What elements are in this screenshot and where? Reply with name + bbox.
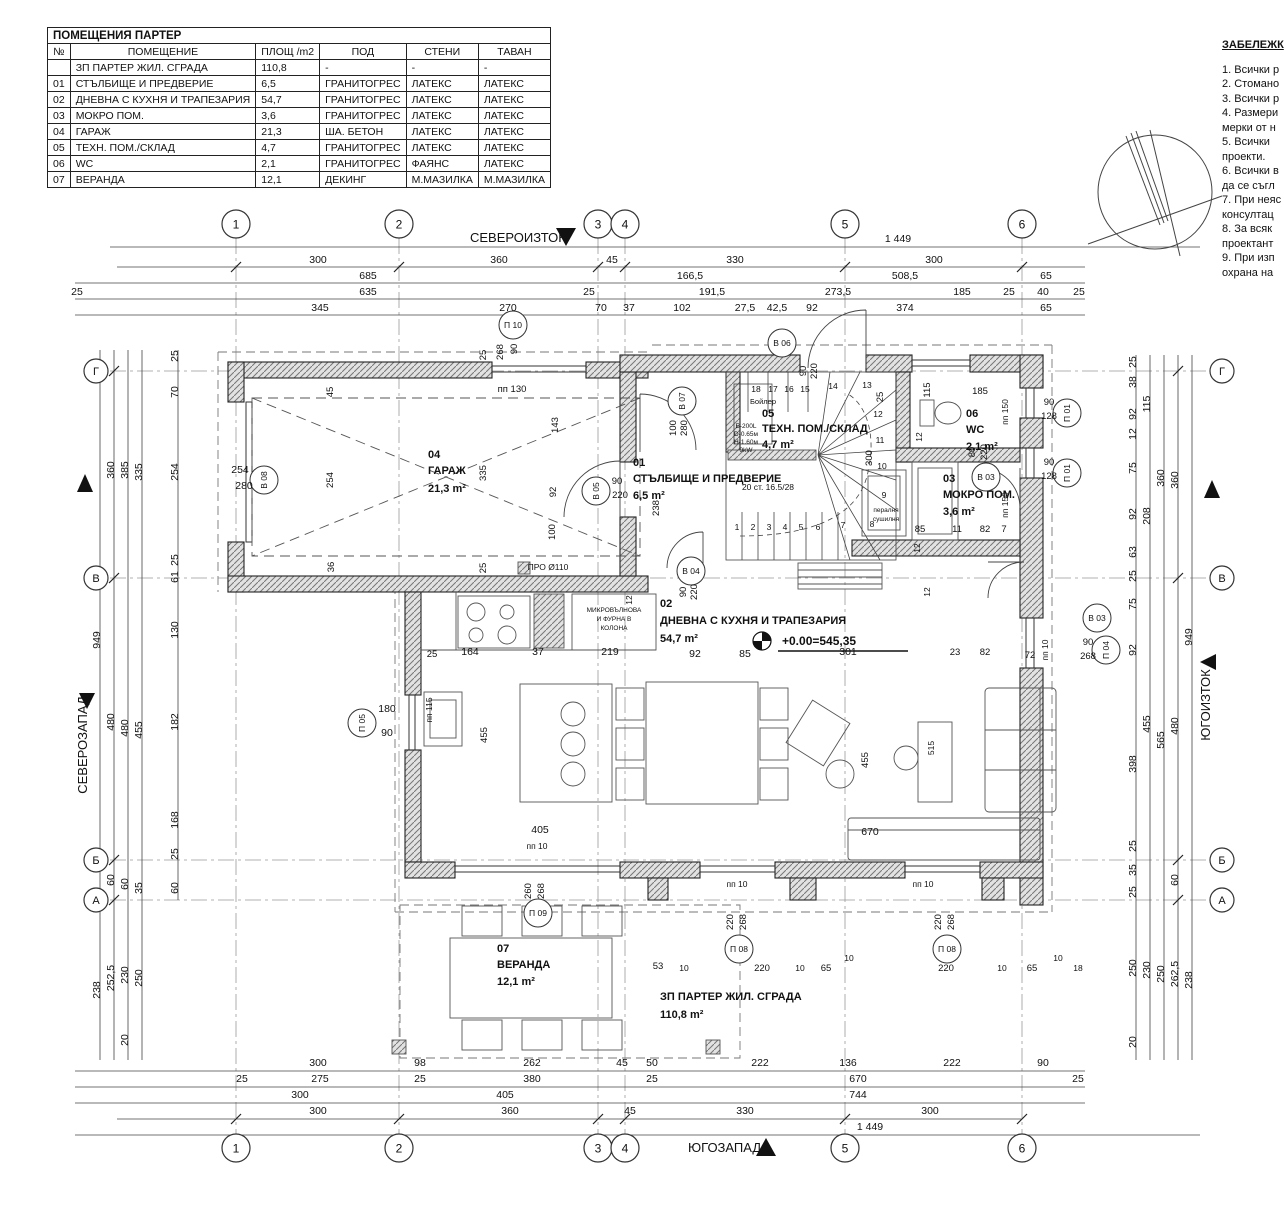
grid-bubble-row-label: В [92,573,99,585]
dim-label: 25 [1072,1073,1084,1085]
dim-label: 7 [841,520,846,530]
dim-label: 9 [882,490,887,500]
dim-label: 508,5 [892,270,918,282]
dim-label: 85 [739,648,751,660]
dim-label: 45 [606,254,618,266]
dim-label: 300 [864,450,875,466]
dim-label: 385 [119,461,131,479]
tag-label: В 07 [677,392,687,410]
dim-label: 250 [1127,959,1139,977]
dim-label: 670 [849,1073,867,1085]
dim-label: пп 10 [1040,639,1050,660]
wall-segment [405,750,421,862]
dim-label: 37 [623,302,635,314]
dim-label: Б-200L [736,423,757,430]
dim-label: 360 [105,461,117,479]
dim-label: 90 [798,366,809,377]
dim-label: 25 [478,350,489,361]
wall-segment [620,862,700,878]
dim-label: 11 [876,435,885,445]
dim-label: 20 [119,1034,131,1046]
dim-label: 75 [1127,598,1139,610]
dim-label: 220 [933,914,944,930]
dim-label: 92 [806,302,818,314]
dim-label: 220 [754,963,770,974]
wall-segment [648,878,668,900]
dim-label: 360 [490,254,508,266]
grid-bubble-row-label: В [1218,573,1225,585]
dim-label: 374 [896,302,914,314]
dim-label: Бойлер [750,397,776,406]
dim-label: ПРО Ø110 [528,562,569,572]
dim-label: 82 [980,647,991,658]
dim-label: 90 [1083,637,1094,648]
dim-label: 949 [91,631,103,649]
dim-label: 300 [291,1089,309,1101]
dim-label: 61 [169,571,181,583]
dim-label: 280 [679,420,690,436]
dim-label: 275 [311,1073,329,1085]
drawing-sheet: ПОМЕЩЕНИЯ ПАРТЕР №ПОМЕЩЕНИЕПЛОЩ /m2ПОДСТ… [0,0,1284,1208]
dim-label: 20 ст. 16.5/28 [742,482,794,492]
dim-label: 405 [496,1089,514,1101]
dim-label: 90 [1037,1057,1049,1069]
dim-label: 208 [1141,507,1153,525]
dim-label: 330 [726,254,744,266]
dim-label: 12 [914,432,924,442]
dim-label: 185 [953,286,971,298]
dim-label: 17 [768,384,778,394]
dim-label: 480 [105,713,117,731]
dim-label: 405 [531,824,549,836]
dim-label: 25 [1127,886,1139,898]
dim-label: 25 [1073,286,1085,298]
north-symbol-icon [1088,130,1222,256]
dim-label: 230 [1141,961,1153,979]
room-05-num: 05 [762,408,774,420]
dim-label: КОЛОНА [600,625,628,632]
dim-label: 90 [678,587,689,598]
dim-label: 10 [844,953,854,963]
dim-label: 25 [1003,286,1015,298]
tag-label: П 09 [529,908,547,918]
dim-label: 262 [523,1057,541,1069]
tag-label: В 05 [591,482,601,500]
dim-label: 219 [601,646,619,658]
dim-label: 380 [523,1073,541,1085]
dim-label: пп 115 [424,697,434,722]
dim-label: 254 [169,463,181,481]
dim-label: 25 [1127,356,1139,368]
dim-label: пп 150 [1000,399,1010,425]
zp-name: ЗП ПАРТЕР ЖИЛ. СГРАДА [660,991,802,1003]
grid-bubble-col-label: 2 [396,217,403,231]
room-07-name: ВЕРАНДА [497,959,550,971]
grid-bubble-row-label: Б [1218,855,1225,867]
room-04-num: 04 [428,449,441,461]
dim-label: 60 [1169,874,1181,886]
dim-label: 254 [231,464,249,476]
dim-label: пералня [873,507,899,514]
dim-label: 23 [950,647,961,658]
dim-label: 98 [414,1057,426,1069]
wall-segment [1020,418,1043,448]
wall-segment [790,878,816,900]
dim-label: пп 150 [1000,492,1010,518]
dim-label: 6 [816,522,821,532]
dim-label: 11 [952,524,962,535]
dim-label: 238 [1183,971,1195,989]
dim-label: 12 [873,409,883,419]
dim-label: 25 [1127,570,1139,582]
dim-label: 25 [169,554,181,566]
dim-label: 10 [795,963,805,973]
dim-label: 12 [624,595,634,605]
dim-label: пп 130 [498,384,527,395]
dim-label: 100 [547,524,558,540]
wall-segment [982,878,1004,900]
dim-label: 238 [91,981,103,999]
dim-label: МИКРОВЪЛНОВА [587,607,642,614]
wall-segment [228,576,648,592]
dim-label: 268 [1080,651,1096,662]
wall-segment [852,540,1020,556]
dim-label: 75 [1127,462,1139,474]
dim-label: 18 [1073,963,1083,973]
dim-label: 455 [479,727,490,743]
dim-label: 455 [133,721,145,739]
dim-label: 230 [119,966,131,984]
dim-label: 63 [1127,546,1139,558]
dim-label: 60 [105,874,117,886]
dim-label: 250 [1155,965,1167,983]
dim-label: 360 [1155,469,1167,487]
dim-label: H-1.60м [734,439,759,446]
grid-bubble-col-label: 1 [233,1141,240,1155]
dim-label: 268 [946,914,957,930]
dim-label: 480 [1169,717,1181,735]
dim-label: 53 [653,961,664,972]
dim-label: 27,5 [735,302,756,314]
dim-label: 300 [921,1105,939,1117]
dim-label: 25 [1127,840,1139,852]
wall-segment [1020,355,1043,388]
dim-label: 90 [612,476,623,487]
room-04-name: ГАРАЖ [428,465,466,477]
dim-label: 37 [532,646,544,658]
wall-segment [980,862,1043,878]
dim-label: 80 [967,447,978,458]
dim-label: 300 [309,254,327,266]
dim-label: 565 [1155,731,1167,749]
dim-label: 270 [499,302,517,314]
dim-label: 12 [922,587,932,597]
dim-label: 166,5 [677,270,703,282]
grid-bubble-row-label: Г [93,366,99,378]
dim-label: 25 [646,1073,658,1085]
direction-top: СЕВЕРОИЗТОК [470,230,566,245]
room-labels: 04 ГАРАЖ 21,3 m² 01 СТЪЛБИЩЕ И ПРЕДВЕРИЕ… [428,408,1015,1021]
dim-label: 115 [1141,395,1153,412]
dim-label: 220 [938,963,954,974]
grid-bubble-col-label: 5 [842,217,849,231]
room-07-num: 07 [497,943,509,955]
dim-label: 7 [1001,524,1006,535]
dim-label: 25 [583,286,595,298]
tag-label: В 03 [977,472,995,482]
dim-label: 252,5 [105,965,117,991]
axis-arrow-left-icon [77,474,93,492]
dim-label: 35 [133,882,145,894]
tag-label: П 04 [1101,641,1111,659]
dim-label: 45 [325,387,336,398]
wall-segment [775,862,905,878]
dim-label: 185 [972,386,988,397]
wall-segment [228,362,244,402]
dim-label: 744 [849,1089,867,1101]
dim-label: 130 [169,621,181,639]
dim-label: 90 [381,727,393,739]
dim-label: 90 [1044,457,1055,468]
dim-label: пп 10 [912,879,933,889]
dim-label: 25 [414,1073,426,1085]
dim-label: 300 [309,1057,327,1069]
dim-label: 300 [925,254,943,266]
direction-left: СЕВЕРОЗАПАД [75,696,90,794]
dim-label: 164 [461,646,479,658]
dim-label: 65 [1027,963,1038,974]
floor-plan: +0.00=545,35 04 ГАРАЖ 21,3 m² 01 СТЪЛБИЩ… [0,0,1284,1208]
dim-label: 102 [673,302,691,314]
room-01-num: 01 [633,457,645,469]
dim-label: 70 [169,386,181,398]
dim-label: 455 [1141,715,1153,733]
dim-label: 92 [689,648,701,660]
grid-bubble-col-label: 3 [595,1141,602,1155]
dim-label: 70 [595,302,607,314]
dim-label: 480 [119,719,131,737]
tag-label: П 05 [357,714,367,732]
dim-label: 25 [478,563,489,574]
grid-bubble-col-label: 4 [622,1141,629,1155]
dim-label: 45 [616,1057,628,1069]
dim-label: 136 [839,1057,857,1069]
dim-label: 92 [548,487,559,498]
dim-label: 180 [378,703,396,715]
dim-label: 10 [679,963,689,973]
dim-label: 268 [495,344,506,360]
dim-label: 60 [169,882,181,894]
dim-label: 50 [646,1057,658,1069]
dim-label: 670 [861,826,879,838]
dim-label: 82 [980,524,991,535]
dim-label: 20 [1127,1036,1139,1048]
dim-label: 4 [783,522,788,532]
direction-right: ЮГОИЗТОК [1198,669,1213,741]
room-02-num: 02 [660,598,672,610]
tag-label: П 10 [504,320,522,330]
wall-segment [405,862,455,878]
dim-label: 25 [169,848,181,860]
room-06-num: 06 [966,408,978,420]
dim-label: 260 [523,883,534,899]
tag-label: В 04 [682,566,700,576]
dim-label: 92 [1127,408,1139,420]
dim-label: 335 [478,465,489,481]
dim-label: 72 [1025,650,1036,661]
dim-label: 168 [169,811,181,829]
dim-label: 85 [915,524,926,535]
tag-label: В 08 [259,471,269,489]
room-02-area: 54,7 m² [660,633,698,645]
dim-label: 45 [624,1105,636,1117]
dim-label: 254 [325,472,336,488]
dim-label: пп 10 [726,879,747,889]
dim-label: 12 [1127,428,1139,440]
dim-label: 10 [877,461,887,471]
dim-label: 1 [735,522,740,532]
wall-segment [405,592,421,695]
tag-label: В 06 [773,338,791,348]
dim-label: 65 [1040,270,1052,282]
dim-label: 128 [1041,411,1057,422]
room-07-area: 12,1 m² [497,976,535,988]
dim-label: 273,5 [825,286,851,298]
wall-segment [620,517,636,576]
grid-bubble-col-label: 6 [1019,217,1026,231]
dim-label: 128 [1041,471,1057,482]
grid-bubble-row-label: Б [92,855,99,867]
dim-label: 60 [119,878,131,890]
dim-label: 250 [133,969,145,987]
dim-label: 18 [751,384,761,394]
dim-label: 115 [922,382,933,397]
dim-label: 10 [1053,953,1063,963]
dim-label: 25 [71,286,83,298]
tag-label: П 08 [730,944,748,954]
dim-label: 15 [800,384,810,394]
room-02-name: ДНЕВНА С КУХНЯ И ТРАПЕЗАРИЯ [660,615,846,627]
dim-label: 191,5 [699,286,725,298]
dim-label: 262,5 [1169,961,1181,987]
dim-label: 35 [1127,864,1139,876]
tag-label: П 08 [938,944,956,954]
dim-label: 238 [651,500,662,516]
dim-label: 220 [979,444,990,460]
dim-label: 2 [751,522,756,532]
dim-label: 16 [784,384,794,394]
tag-label: В 03 [1088,613,1106,623]
room-03-area: 3,6 m² [943,506,975,518]
wall-segment [620,355,800,372]
dim-label: 220 [725,914,736,930]
dim-label: 222 [751,1057,769,1069]
dim-label: 220 [809,363,820,379]
grid-bubbles: 112233445566ГГВВББАА [84,210,1234,1162]
dim-label: 635 [359,286,377,298]
dim-label: 65 [1040,302,1052,314]
dim-label: 515 [926,741,936,755]
wall-segment [1020,478,1043,618]
dim-label: 25 [427,649,438,660]
dim-label: 222 [943,1057,961,1069]
dim-label: сушилня [873,516,900,523]
dim-label: 92 [1127,644,1139,656]
grid-bubble-col-label: 2 [396,1141,403,1155]
dim-label: И ФУРНА В [597,616,632,623]
dim-label: 1 449 [885,233,911,245]
dim-label: 360 [501,1105,519,1117]
dim-label: D-0.65м [734,431,759,438]
grid-bubble-row-label: Г [1219,366,1225,378]
level-mark: +0.00=545,35 [753,632,908,651]
direction-bottom: ЮГОЗАПАД [688,1140,761,1155]
dim-label: 1 449 [857,1121,883,1133]
grid-bubble-col-label: 3 [595,217,602,231]
dim-label: 12 [912,543,922,553]
dim-label: 14 [828,381,838,391]
dim-label: 38 [1127,376,1139,388]
room-03-num: 03 [943,473,955,485]
dim-label: 3 [767,522,772,532]
room-06-name: WC [966,424,984,436]
dim-label: 280 [235,480,253,492]
zp-area: 110,8 m² [660,1009,704,1021]
dim-label: 65 [821,963,832,974]
wall-segment [866,355,912,372]
dim-label: 40 [1037,286,1049,298]
room-05-area: 4,7 m² [762,439,794,451]
grid-bubble-col-label: 1 [233,217,240,231]
dim-label: 301 [839,646,857,658]
dim-label: 398 [1127,755,1139,773]
grid-bubble-col-label: 4 [622,217,629,231]
dim-label: 268 [536,883,547,899]
dim-label: 949 [1183,628,1195,646]
direction-right-arrow-icon [1200,654,1216,670]
room-04-area: 21,3 m² [428,483,466,495]
dim-label: 335 [133,463,145,481]
dim-label: 25 [169,350,181,362]
grid-bubble-col-label: 6 [1019,1141,1026,1155]
dim-label: 90 [1044,397,1055,408]
dim-label: 13 [862,380,872,390]
grid-bubble-col-label: 5 [842,1141,849,1155]
dim-label: 25 [875,392,886,403]
wall-segment [228,362,492,378]
dim-label: 330 [736,1105,754,1117]
dim-label: 90 [509,344,520,355]
dim-label: 92 [1127,508,1139,520]
tag-label: П 01 [1062,464,1072,482]
dim-label: 220 [689,584,700,600]
grid-bubble-row-label: А [92,895,100,907]
dim-label: 5 [799,522,804,532]
room-05-name: ТЕХН. ПОМ./СКЛАД [762,423,868,435]
dim-label: 220 [612,490,628,501]
dim-label: 182 [169,713,181,731]
wall-segment [896,448,1020,462]
dim-label: 25 [236,1073,248,1085]
dim-label: 36 [326,562,337,573]
dim-label: 345 [311,302,329,314]
dim-label: 455 [860,752,871,768]
tag-label: П 01 [1062,404,1072,422]
dim-label: 42,5 [767,302,788,314]
dim-label: 9kW [740,447,754,454]
wall-segment [620,372,636,462]
dim-label: 143 [550,417,561,433]
